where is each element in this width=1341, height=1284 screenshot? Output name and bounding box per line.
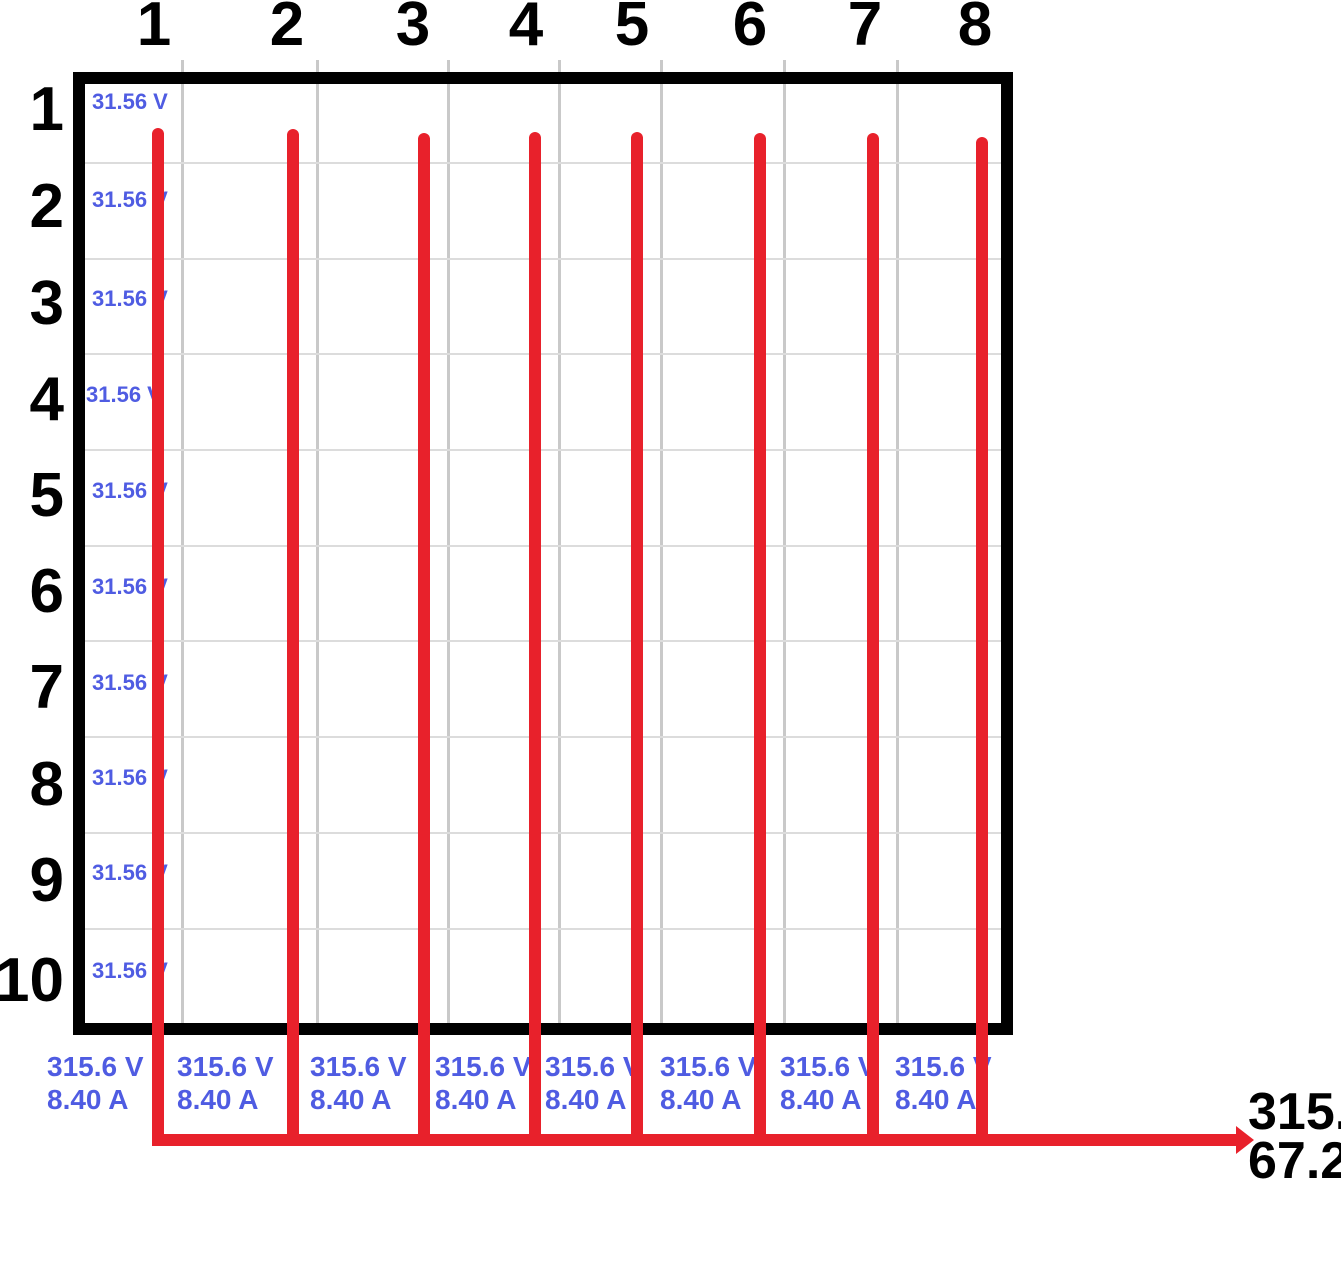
- string-output-label-1: 315.6 V 8.40 A: [47, 1050, 144, 1116]
- string-current-6: 8.40 A: [660, 1083, 757, 1116]
- string-wire-8: [976, 137, 988, 1146]
- column-number-1: 1: [114, 0, 194, 58]
- row-number-9: 9: [0, 848, 64, 914]
- row-number-3: 3: [0, 271, 64, 337]
- string-current-3: 8.40 A: [310, 1083, 407, 1116]
- string-current-2: 8.40 A: [177, 1083, 274, 1116]
- string-wire-5: [631, 132, 643, 1146]
- module-voltage-label-1: 31.56 V: [92, 89, 168, 115]
- pv-array-diagram: 1 2 3 4 5 6 7 8 1 2 3 4 5 6 7 8 9 10 31.…: [0, 0, 1341, 1284]
- string-output-label-7: 315.6 V 8.40 A: [780, 1050, 877, 1116]
- column-number-4: 4: [486, 0, 566, 58]
- string-wire-3: [418, 133, 430, 1146]
- bus-wire: [152, 1134, 1238, 1146]
- array-output-label: 315.6 V 67.2 A: [1248, 1088, 1341, 1186]
- row-number-4: 4: [0, 367, 64, 433]
- string-voltage-6: 315.6 V: [660, 1050, 757, 1083]
- column-number-3: 3: [373, 0, 453, 58]
- string-current-4: 8.40 A: [435, 1083, 532, 1116]
- string-current-1: 8.40 A: [47, 1083, 144, 1116]
- string-wire-6: [754, 133, 766, 1146]
- column-number-7: 7: [825, 0, 905, 58]
- row-number-10: 10: [0, 948, 64, 1014]
- row-number-1: 1: [0, 77, 64, 143]
- string-voltage-4: 315.6 V: [435, 1050, 532, 1083]
- string-output-label-4: 315.6 V 8.40 A: [435, 1050, 532, 1116]
- row-number-7: 7: [0, 655, 64, 721]
- string-voltage-7: 315.6 V: [780, 1050, 877, 1083]
- column-number-8: 8: [935, 0, 1015, 58]
- string-voltage-2: 315.6 V: [177, 1050, 274, 1083]
- bus-arrowhead-icon: [1236, 1126, 1254, 1154]
- column-number-6: 6: [710, 0, 790, 58]
- column-number-5: 5: [592, 0, 672, 58]
- column-number-2: 2: [247, 0, 327, 58]
- string-output-label-5: 315.6 V 8.40 A: [545, 1050, 642, 1116]
- row-number-6: 6: [0, 559, 64, 625]
- string-current-5: 8.40 A: [545, 1083, 642, 1116]
- array-output-voltage: 315.6 V: [1248, 1088, 1341, 1137]
- module-voltage-label-4: 31.56 V: [86, 382, 162, 408]
- string-output-label-2: 315.6 V 8.40 A: [177, 1050, 274, 1116]
- string-wire-1: [152, 128, 164, 1146]
- string-output-label-6: 315.6 V 8.40 A: [660, 1050, 757, 1116]
- string-voltage-1: 315.6 V: [47, 1050, 144, 1083]
- string-voltage-5: 315.6 V: [545, 1050, 642, 1083]
- string-wire-2: [287, 129, 299, 1146]
- string-current-7: 8.40 A: [780, 1083, 877, 1116]
- row-number-8: 8: [0, 752, 64, 818]
- string-voltage-3: 315.6 V: [310, 1050, 407, 1083]
- row-number-2: 2: [0, 174, 64, 240]
- string-output-label-3: 315.6 V 8.40 A: [310, 1050, 407, 1116]
- row-number-5: 5: [0, 463, 64, 529]
- string-wire-4: [529, 132, 541, 1146]
- array-output-current: 67.2 A: [1248, 1137, 1341, 1186]
- string-wire-7: [867, 133, 879, 1146]
